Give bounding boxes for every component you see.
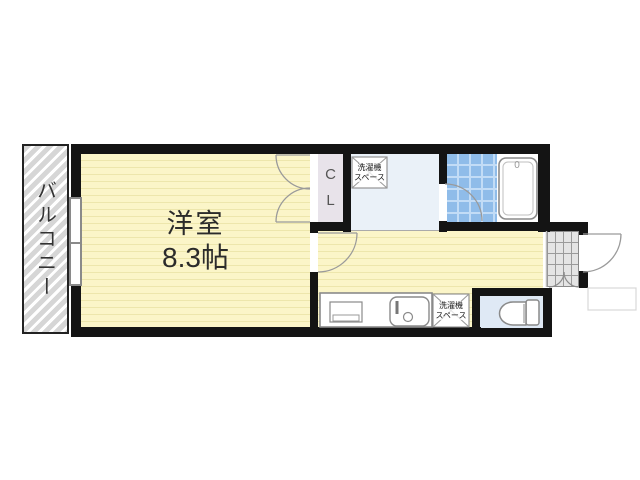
- closet-label: C L: [318, 154, 343, 222]
- entrance-genkan-area: [547, 231, 579, 287]
- balcony-label: バルコニー: [22, 146, 68, 333]
- bathroom-tile-area: [447, 154, 497, 222]
- washer-space-label-kitchen: 洗濯機 スペース: [433, 294, 469, 327]
- washer-space-label-top: 洗濯機 スペース: [352, 157, 387, 188]
- toilet-room-area: [480, 296, 543, 328]
- wall-segment: [472, 288, 552, 296]
- bathtub-faucet-mark: 0: [509, 160, 525, 171]
- wall-segment: [440, 222, 587, 231]
- floorplan-canvas: バルコニー 洋室 8.3帖 C L 洗濯機 スペース 洗濯機 スペース 0: [0, 0, 640, 480]
- wall-segment: [579, 271, 588, 288]
- wall-segment: [579, 222, 588, 235]
- window-sash-line: [71, 242, 80, 244]
- bathroom-door-opening: [439, 184, 447, 221]
- main-room-name: 洋室: [167, 207, 225, 241]
- main-room-label: 洋室 8.3帖: [81, 154, 310, 327]
- washer-label-line2: スペース: [354, 173, 385, 183]
- wall-segment: [310, 144, 318, 154]
- wall-segment: [343, 144, 351, 232]
- washer-label-line1: 洗濯機: [439, 301, 463, 311]
- wall-segment: [310, 222, 351, 231]
- wall-segment: [310, 272, 318, 337]
- main-room-size: 8.3帖: [162, 241, 229, 275]
- washer-label-line2: スペース: [435, 311, 466, 321]
- closet-label-l: L: [326, 188, 334, 214]
- entrance-door-swing-icon: [583, 234, 621, 272]
- washer-label-line1: 洗濯機: [358, 163, 382, 173]
- wall-segment: [472, 328, 552, 337]
- balcony-label-text: バルコニー: [31, 180, 60, 300]
- wall-segment: [439, 144, 447, 184]
- room-door-opening: [310, 233, 318, 272]
- closet-opening: [310, 154, 318, 222]
- closet-label-c: C: [325, 162, 336, 188]
- wall-segment: [538, 144, 550, 232]
- wall-segment: [71, 327, 481, 337]
- porch-outline: [588, 288, 636, 310]
